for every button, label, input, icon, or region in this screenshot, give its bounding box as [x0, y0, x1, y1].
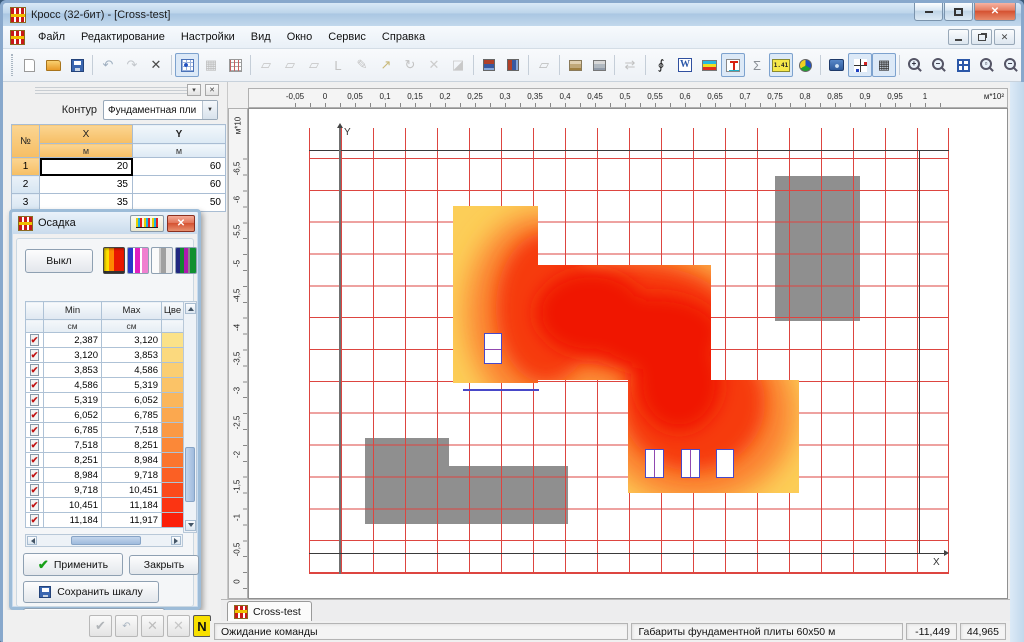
x-axis-arrow-icon: [944, 550, 952, 556]
color-swatch[interactable]: [162, 453, 184, 468]
soil-report-button[interactable]: [587, 53, 611, 77]
max-value[interactable]: 3,853: [102, 348, 162, 363]
range-checkbox-cell: ✔: [26, 378, 44, 393]
window-right-edge: [1010, 82, 1024, 642]
range-checkbox-cell: ✔: [26, 513, 44, 528]
zoom-previous-button[interactable]: −: [999, 53, 1023, 77]
scale-horizontal-scrollbar[interactable]: [25, 534, 183, 547]
max-unit: см: [102, 320, 162, 333]
min-header[interactable]: Min: [44, 302, 102, 320]
max-value[interactable]: 8,984: [102, 453, 162, 468]
pile-load-icon: [726, 59, 740, 72]
undo-icon: ↶: [122, 621, 130, 632]
close-icon: ✕: [991, 6, 999, 17]
check-column-header: [26, 302, 44, 320]
off-button[interactable]: Выкл: [25, 249, 93, 273]
cancel-icon: ✕: [147, 618, 158, 634]
vertical-scroll-thumb[interactable]: [185, 447, 195, 502]
title-bar[interactable]: Кросс (32-бит) - [Cross-test] ✕: [3, 3, 1021, 26]
scroll-right-icon[interactable]: [171, 536, 181, 545]
eraser-button[interactable]: ◪: [446, 53, 470, 77]
section-side-icon: [507, 59, 519, 71]
document-icon: [10, 30, 25, 45]
chevron-down-icon[interactable]: ▼: [202, 101, 217, 119]
max-value[interactable]: 8,251: [102, 438, 162, 453]
min-value[interactable]: 6,052: [44, 408, 102, 423]
move-node-button[interactable]: ↗: [374, 53, 398, 77]
max-value[interactable]: 5,319: [102, 378, 162, 393]
histogram-icon: [136, 218, 158, 228]
dialog-icon: [18, 216, 33, 231]
sum-button[interactable]: Σ: [745, 53, 769, 77]
insert-fragment-button[interactable]: ▱: [302, 53, 326, 77]
scale-row-2: ✔3,1203,853: [26, 348, 184, 363]
redo-button[interactable]: ↷: [120, 53, 144, 77]
plate-opening-3: [681, 449, 700, 478]
vertical-ruler: м*10 0-0,5-1-1,5-2-2,5-3-3,5-4-4,5-5-5,5…: [228, 108, 248, 599]
palette-grayscale[interactable]: [151, 247, 173, 274]
section-front-icon: [483, 59, 495, 71]
dialog-title: Осадка: [38, 217, 130, 229]
x-value-cell[interactable]: 35: [40, 176, 133, 194]
min-value[interactable]: 4,586: [44, 378, 102, 393]
snapshot-settings-icon: [829, 59, 844, 71]
ruler-top-label: 0,8: [788, 92, 822, 101]
ruler-left-unit: м*10: [234, 109, 243, 143]
horizontal-scroll-thumb[interactable]: [71, 536, 141, 545]
min-value[interactable]: 9,718: [44, 483, 102, 498]
delete-button[interactable]: ✕: [144, 53, 168, 77]
min-value[interactable]: 11,184: [44, 513, 102, 528]
save-scale-label: Сохранить шкалу: [57, 586, 143, 598]
grid-numbers-icon: [229, 59, 242, 72]
app-icon: [10, 7, 26, 23]
undo-footer-button[interactable]: ↶: [115, 615, 138, 637]
menu-item-файл[interactable]: Файл: [30, 28, 73, 46]
contour-selected-value: Фундаментная пли: [104, 105, 202, 116]
min-value[interactable]: 10,451: [44, 498, 102, 513]
row-number[interactable]: 2: [12, 176, 40, 194]
color-swatch[interactable]: [162, 378, 184, 393]
ruler-top-label: 0,65: [698, 92, 732, 101]
color-swatch[interactable]: [162, 393, 184, 408]
min-unit: см: [44, 320, 102, 333]
cursor-y-coordinate: 44,965: [960, 623, 1006, 640]
apply-button[interactable]: ✔ Применить: [23, 553, 123, 576]
palette-buttons: [103, 247, 197, 274]
update-model-button[interactable]: ⇄: [618, 53, 642, 77]
dialog-body: Выкл Min Max Цве см см: [16, 238, 194, 607]
y-value-cell[interactable]: 60: [133, 158, 226, 176]
cancel-footer-button[interactable]: ✕: [141, 615, 164, 637]
scale-row-9: ✔8,2518,984: [26, 453, 184, 468]
eraser-icon: ◪: [452, 57, 464, 73]
rotate-left-button[interactable]: L: [326, 53, 350, 77]
close-button[interactable]: ✕: [974, 3, 1016, 21]
ruler-top-label: 0,85: [818, 92, 852, 101]
color-swatch[interactable]: [162, 513, 184, 528]
open-file-button[interactable]: [41, 53, 65, 77]
range-checkbox[interactable]: ✔: [30, 499, 40, 511]
sum-icon: Σ: [753, 58, 761, 73]
ruler-top-label: 0,6: [668, 92, 702, 101]
edit-contour-button[interactable]: ✎: [350, 53, 374, 77]
range-checkbox-cell: ✔: [26, 498, 44, 513]
model-right-boundary: [919, 150, 920, 554]
unit-x: м: [40, 144, 133, 158]
ruler-left-label: -3: [233, 374, 244, 408]
color-header[interactable]: Цве: [162, 302, 184, 320]
unit-y: м: [133, 144, 226, 158]
ruler-left-label: -1,5: [233, 469, 244, 503]
maximize-button[interactable]: [944, 3, 973, 21]
ruler-left-label: -6: [233, 183, 244, 217]
max-value[interactable]: 11,184: [102, 498, 162, 513]
zoom-window-button[interactable]: [951, 53, 975, 77]
undo-button[interactable]: ↶: [96, 53, 120, 77]
range-checkbox-cell: ✔: [26, 393, 44, 408]
contour-label: Контур: [3, 104, 103, 116]
ruler-top-label: 0,3: [488, 92, 522, 101]
show-axes-button[interactable]: [848, 53, 872, 77]
scale-row-11: ✔9,71810,451: [26, 483, 184, 498]
histogram-button[interactable]: [130, 215, 164, 232]
calculator-button[interactable]: 1.41: [769, 53, 793, 77]
palette-multicolor[interactable]: [175, 247, 197, 274]
insert-fragment-icon: ▱: [309, 57, 319, 73]
save-icon: [71, 59, 84, 72]
ruler-top-label: 0,15: [398, 92, 432, 101]
color-swatch[interactable]: [162, 498, 184, 513]
max-value[interactable]: 11,917: [102, 513, 162, 528]
integral-icon: ∮: [658, 57, 665, 73]
menu-bar: ФайлРедактированиеНастройкиВидОкноСервис…: [3, 26, 1021, 49]
column-header-y[interactable]: Y: [133, 125, 226, 144]
document-tab-bar: Cross-test: [221, 599, 1010, 621]
plate-opening-2: [645, 449, 664, 478]
pile-load-button[interactable]: [721, 53, 745, 77]
plate-contour-segment: [463, 389, 539, 391]
ruler-left-label: -3,5: [233, 342, 244, 376]
grid-numbers-button[interactable]: [223, 53, 247, 77]
undo-icon: ↶: [103, 57, 114, 73]
rotate-fragment-button[interactable]: ↻: [398, 53, 422, 77]
minimize-button[interactable]: [914, 3, 943, 21]
ruler-top-label: 0,45: [578, 92, 612, 101]
ruler-top-label: 0,4: [548, 92, 582, 101]
move-node-icon: ↗: [381, 57, 392, 73]
ruler-top-label: 1: [908, 92, 942, 101]
dialog-close-button[interactable]: ✕: [167, 215, 195, 232]
ruler-left-label: -4,5: [233, 278, 244, 312]
fragment-grid-icon: [181, 59, 194, 72]
color-swatch[interactable]: [162, 363, 184, 378]
zoom-out-icon: –: [931, 57, 947, 73]
range-checkbox[interactable]: ✔: [30, 394, 40, 406]
show-mesh-icon: ▦: [878, 57, 890, 73]
scale-row-7: ✔6,7857,518: [26, 423, 184, 438]
ruler-left-label: -1: [233, 501, 244, 535]
row-number[interactable]: 1: [12, 158, 40, 176]
menu-item-сервис[interactable]: Сервис: [320, 28, 374, 46]
max-header[interactable]: Max: [102, 302, 162, 320]
max-value[interactable]: 4,586: [102, 363, 162, 378]
status-bar: Ожидание команды Габариты фундаментной п…: [210, 621, 1010, 642]
column-header-num[interactable]: №: [12, 125, 40, 158]
scale-table: Min Max Цве см см ✔2,3873,120✔3,1203,853…: [25, 301, 184, 528]
maximize-icon: [954, 8, 963, 16]
menu-item-окно[interactable]: Окно: [279, 28, 321, 46]
status-plate-info: Габариты фундаментной плиты 60x50 м: [631, 623, 903, 640]
ruler-top-label: 0,75: [758, 92, 792, 101]
color-swatch[interactable]: [162, 348, 184, 363]
scale-row-8: ✔7,5188,251: [26, 438, 184, 453]
check-icon: ✔: [38, 557, 49, 573]
range-checkbox[interactable]: ✔: [30, 439, 40, 451]
y-value-cell[interactable]: 60: [133, 176, 226, 194]
ruler-left-label: -6,5: [233, 151, 244, 185]
numbering-footer-button[interactable]: N: [193, 615, 211, 637]
delete-node-button[interactable]: ✕: [422, 53, 446, 77]
range-checkbox[interactable]: ✔: [30, 364, 40, 376]
panel-collapse-button[interactable]: ▾: [187, 84, 201, 96]
calculator-icon: 1.41: [772, 59, 790, 72]
toolbar-separator: [171, 55, 172, 75]
export-word-icon: W: [678, 58, 692, 72]
toolbar-grip[interactable]: [11, 54, 13, 76]
scale-row-3: ✔3,8534,586: [26, 363, 184, 378]
x-value-cell[interactable]: 20: [40, 158, 133, 176]
app-window: Кросс (32-бит) - [Cross-test] ✕ ФайлРеда…: [0, 0, 1024, 642]
horizontal-ruler: м*10² -0,0500,050,10,150,20,250,30,350,4…: [248, 88, 1008, 108]
x-axis: [309, 553, 944, 554]
toolbar-separator: [899, 55, 900, 75]
dialog-title-bar[interactable]: Осадка ✕: [12, 212, 198, 234]
tab-cross-test[interactable]: Cross-test: [227, 601, 312, 622]
range-checkbox[interactable]: ✔: [30, 484, 40, 496]
update-model-icon: ⇄: [625, 57, 636, 73]
integral-button[interactable]: ∮: [649, 53, 673, 77]
range-checkbox[interactable]: ✔: [30, 469, 40, 481]
color-palette-icon: [799, 59, 812, 72]
max-value[interactable]: 7,518: [102, 423, 162, 438]
max-value[interactable]: 10,451: [102, 483, 162, 498]
panel-close-button[interactable]: ✕: [205, 84, 219, 96]
color-swatch[interactable]: [162, 423, 184, 438]
new-document-icon: [24, 59, 35, 72]
color-swatch[interactable]: [162, 333, 184, 348]
snapshot-settings-button[interactable]: [824, 53, 848, 77]
apply-footer-button[interactable]: ✔: [89, 615, 112, 637]
ruler-left-label: -5: [233, 247, 244, 281]
scale-row-6: ✔6,0526,785: [26, 408, 184, 423]
toolbar-separator: [559, 55, 560, 75]
x-axis-label: X: [933, 557, 940, 568]
y-axis-arrow-icon: [337, 120, 343, 128]
zoom-region-button[interactable]: ▫: [975, 53, 999, 77]
ruler-top-label: 0,55: [638, 92, 672, 101]
delete-node-icon: ✕: [429, 57, 440, 73]
color-swatch[interactable]: [162, 408, 184, 423]
soil-table-button[interactable]: [563, 53, 587, 77]
mdi-minimize-button[interactable]: [948, 29, 969, 45]
floppy-icon: [39, 586, 51, 598]
ruler-left-label: -0,5: [233, 533, 244, 567]
scroll-left-icon[interactable]: [27, 536, 37, 545]
soil-layers-button[interactable]: [697, 53, 721, 77]
max-value[interactable]: 6,052: [102, 393, 162, 408]
ruler-top-label: -0,05: [278, 92, 312, 101]
ruler-top-label: 0,9: [848, 92, 882, 101]
min-value[interactable]: 7,518: [44, 438, 102, 453]
mdi-restore-icon: [978, 34, 986, 41]
ruler-top-label: 0,5: [608, 92, 642, 101]
panel-grip[interactable]: [35, 86, 190, 94]
min-value[interactable]: 3,853: [44, 363, 102, 378]
range-checkbox[interactable]: ✔: [30, 334, 40, 346]
range-checkbox-cell: ✔: [26, 333, 44, 348]
min-value[interactable]: 2,387: [44, 333, 102, 348]
y-axis: [339, 126, 341, 574]
min-value[interactable]: 5,319: [44, 393, 102, 408]
show-mesh-button[interactable]: ▦: [872, 53, 896, 77]
toolbar-separator: [250, 55, 251, 75]
y-axis-label: Y: [344, 127, 351, 138]
tab-label: Cross-test: [253, 606, 301, 618]
grid-info-icon: ▦: [205, 57, 217, 73]
export-word-button[interactable]: W: [673, 53, 697, 77]
show-axes-icon: [854, 59, 867, 72]
toolbar-separator: [820, 55, 821, 75]
soil-table-icon: [569, 60, 582, 71]
save-button[interactable]: [65, 53, 89, 77]
status-message: Ожидание команды: [214, 623, 628, 640]
range-checkbox[interactable]: ✔: [30, 514, 40, 526]
delete-icon: ✕: [173, 618, 184, 634]
delete-icon: ✕: [151, 57, 162, 73]
scroll-down-icon[interactable]: [185, 520, 196, 531]
model-viewport[interactable]: Y X: [248, 108, 1008, 599]
main-toolbar: ↶↷✕▦▱▱▱L✎↗↻✕◪▱⇄∮WΣ1.41▦+–▫−≡: [3, 49, 1021, 82]
ruler-top-label: 0,05: [338, 92, 372, 101]
numbering-icon: N: [197, 619, 206, 634]
menu-item-справка[interactable]: Справка: [374, 28, 433, 46]
range-checkbox-cell: ✔: [26, 408, 44, 423]
min-value[interactable]: 8,251: [44, 453, 102, 468]
range-checkbox-cell: ✔: [26, 483, 44, 498]
ruler-top-label: 0: [308, 92, 342, 101]
column-header-x[interactable]: X: [40, 125, 133, 144]
color-swatch[interactable]: [162, 468, 184, 483]
soil-layers-icon: [702, 60, 717, 71]
grid-info-button[interactable]: ▦: [199, 53, 223, 77]
max-value[interactable]: 6,785: [102, 408, 162, 423]
close-dialog-button[interactable]: Закрыть: [129, 555, 199, 575]
scale-row-5: ✔5,3196,052: [26, 393, 184, 408]
min-value[interactable]: 8,984: [44, 468, 102, 483]
contour-select[interactable]: Фундаментная пли ▼: [103, 100, 218, 120]
mdi-close-button[interactable]: ✕: [994, 29, 1015, 45]
ruler-left-label: -5,5: [233, 215, 244, 249]
contour-table: № X Y м м 120602356033550: [11, 124, 226, 212]
plate-copy-button[interactable]: ▱: [532, 53, 556, 77]
zoom-out-button[interactable]: –: [927, 53, 951, 77]
ruler-top-label: 0,7: [728, 92, 762, 101]
scale-row-10: ✔8,9849,718: [26, 468, 184, 483]
range-checkbox-cell: ✔: [26, 468, 44, 483]
ruler-left-label: 0: [233, 565, 244, 599]
ruler-top-label: 0,2: [428, 92, 462, 101]
menu-item-вид[interactable]: Вид: [243, 28, 279, 46]
zoom-window-icon: [957, 59, 970, 72]
rotate-left-icon: L: [334, 58, 341, 73]
mdi-minimize-icon: [955, 39, 962, 41]
panel-footer-toolbar: ✔↶✕✕N: [3, 610, 221, 642]
ruler-top-label: 0,25: [458, 92, 492, 101]
menu-item-настройки[interactable]: Настройки: [173, 28, 243, 46]
range-checkbox[interactable]: ✔: [30, 409, 40, 421]
range-checkbox-cell: ✔: [26, 423, 44, 438]
zoom-in-button[interactable]: +: [903, 53, 927, 77]
copy-fragment-icon: ▱: [261, 57, 271, 73]
range-checkbox[interactable]: ✔: [30, 424, 40, 436]
paste-fragment-button[interactable]: ▱: [278, 53, 302, 77]
apply-icon: ✔: [95, 618, 106, 634]
section-side-button[interactable]: [501, 53, 525, 77]
zoom-region-icon: ▫: [979, 57, 995, 73]
range-checkbox[interactable]: ✔: [30, 349, 40, 361]
mdi-restore-button[interactable]: [971, 29, 992, 45]
ruler-top-label: 0,35: [518, 92, 552, 101]
zoom-previous-icon: −: [1003, 57, 1019, 73]
range-checkbox-cell: ✔: [26, 453, 44, 468]
drawing-canvas-area: м*10² -0,0500,050,10,150,20,250,30,350,4…: [228, 82, 1010, 599]
toolbar-separator: [614, 55, 615, 75]
min-value[interactable]: 6,785: [44, 423, 102, 438]
max-value[interactable]: 3,120: [102, 333, 162, 348]
ruler-left-label: -2,5: [233, 406, 244, 440]
fragment-grid-button[interactable]: [175, 53, 199, 77]
palette-blue-magenta[interactable]: [127, 247, 149, 274]
menu-item-редактирование[interactable]: Редактирование: [73, 28, 173, 46]
toolbar-separator: [645, 55, 646, 75]
ruler-top-label: 0,1: [368, 92, 402, 101]
plate-opening-1: [484, 333, 502, 364]
range-checkbox-cell: ✔: [26, 438, 44, 453]
new-document-button[interactable]: [17, 53, 41, 77]
soil-report-icon: [593, 60, 606, 71]
copy-fragment-button[interactable]: ▱: [254, 53, 278, 77]
zoom-in-icon: +: [907, 57, 923, 73]
palette-yellow-red[interactable]: [103, 247, 125, 274]
toolbar-separator: [528, 55, 529, 75]
save-scale-button[interactable]: Сохранить шкалу: [23, 581, 159, 603]
range-checkbox[interactable]: ✔: [30, 454, 40, 466]
color-swatch[interactable]: [162, 438, 184, 453]
scroll-up-icon[interactable]: [185, 303, 196, 314]
delete-footer-button[interactable]: ✕: [167, 615, 190, 637]
max-value[interactable]: 9,718: [102, 468, 162, 483]
scale-row-12: ✔10,45111,184: [26, 498, 184, 513]
range-checkbox-cell: ✔: [26, 348, 44, 363]
range-checkbox[interactable]: ✔: [30, 379, 40, 391]
min-value[interactable]: 3,120: [44, 348, 102, 363]
color-palette-button[interactable]: [793, 53, 817, 77]
section-front-button[interactable]: [477, 53, 501, 77]
color-swatch[interactable]: [162, 483, 184, 498]
window-title: Кросс (32-бит) - [Cross-test]: [31, 9, 170, 21]
scale-vertical-scrollbar[interactable]: [183, 301, 197, 533]
